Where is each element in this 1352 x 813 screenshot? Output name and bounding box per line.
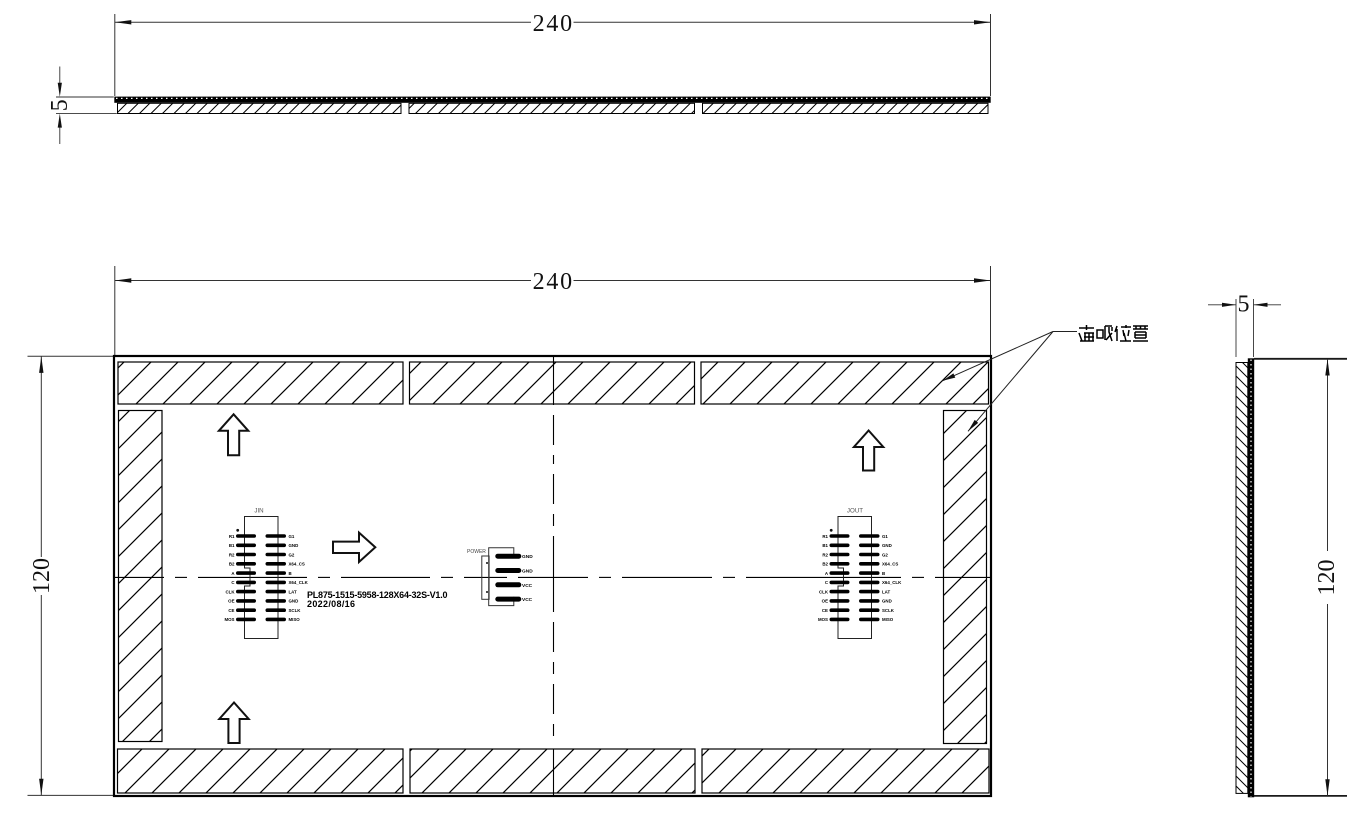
svg-text:GND: GND — [522, 569, 533, 575]
svg-text:SCLK: SCLK — [882, 608, 895, 613]
svg-text:120: 120 — [1314, 560, 1340, 596]
svg-text:CE: CE — [822, 608, 828, 613]
svg-text:VCC: VCC — [522, 583, 533, 589]
svg-text:B2: B2 — [229, 562, 235, 567]
svg-text:R1: R1 — [822, 534, 828, 539]
svg-text:CLK: CLK — [225, 589, 235, 594]
svg-text:R2: R2 — [822, 552, 828, 557]
svg-text:X64_CLK: X64_CLK — [882, 580, 902, 585]
svg-text:MISO: MISO — [289, 617, 301, 622]
svg-text:MOS: MOS — [224, 617, 234, 622]
svg-text:240: 240 — [533, 269, 573, 295]
svg-text:CLK: CLK — [819, 589, 829, 594]
svg-text:B: B — [289, 571, 292, 576]
svg-text:G1: G1 — [882, 534, 888, 539]
svg-text:G2: G2 — [882, 552, 888, 557]
svg-text:JIN: JIN — [254, 508, 263, 515]
svg-text:POWER: POWER — [467, 549, 486, 555]
svg-text:GND: GND — [882, 543, 892, 548]
svg-text:X64_CS: X64_CS — [882, 562, 898, 567]
svg-text:JOUT: JOUT — [847, 508, 863, 515]
svg-text:B1: B1 — [822, 543, 828, 548]
svg-text:R1: R1 — [229, 534, 235, 539]
svg-text:GND: GND — [289, 599, 299, 604]
svg-text:SCLK: SCLK — [289, 608, 302, 613]
svg-text:5: 5 — [47, 99, 73, 111]
svg-text:MISO: MISO — [882, 617, 894, 622]
svg-text:G1: G1 — [289, 534, 295, 539]
svg-text:5: 5 — [1238, 292, 1250, 318]
svg-text:GND: GND — [289, 543, 299, 548]
svg-text:G2: G2 — [289, 552, 295, 557]
svg-text:CE: CE — [228, 608, 234, 613]
svg-text:B1: B1 — [229, 543, 235, 548]
svg-text:GND: GND — [882, 599, 892, 604]
svg-text:B: B — [882, 571, 885, 576]
svg-text:OE: OE — [228, 599, 234, 604]
svg-text:B2: B2 — [822, 562, 828, 567]
svg-text:240: 240 — [533, 11, 573, 37]
svg-text:LAT: LAT — [289, 589, 298, 594]
svg-text:120: 120 — [29, 558, 55, 594]
svg-text:X64_CS: X64_CS — [289, 562, 305, 567]
svg-text:GND: GND — [522, 554, 533, 560]
svg-text:R2: R2 — [229, 552, 235, 557]
svg-text:MOS: MOS — [818, 617, 828, 622]
svg-text:OE: OE — [822, 599, 828, 604]
svg-text:VCC: VCC — [522, 597, 533, 603]
svg-text:X64_CLK: X64_CLK — [289, 580, 309, 585]
svg-text:2022/08/16: 2022/08/16 — [307, 599, 355, 609]
svg-text:LAT: LAT — [882, 589, 891, 594]
